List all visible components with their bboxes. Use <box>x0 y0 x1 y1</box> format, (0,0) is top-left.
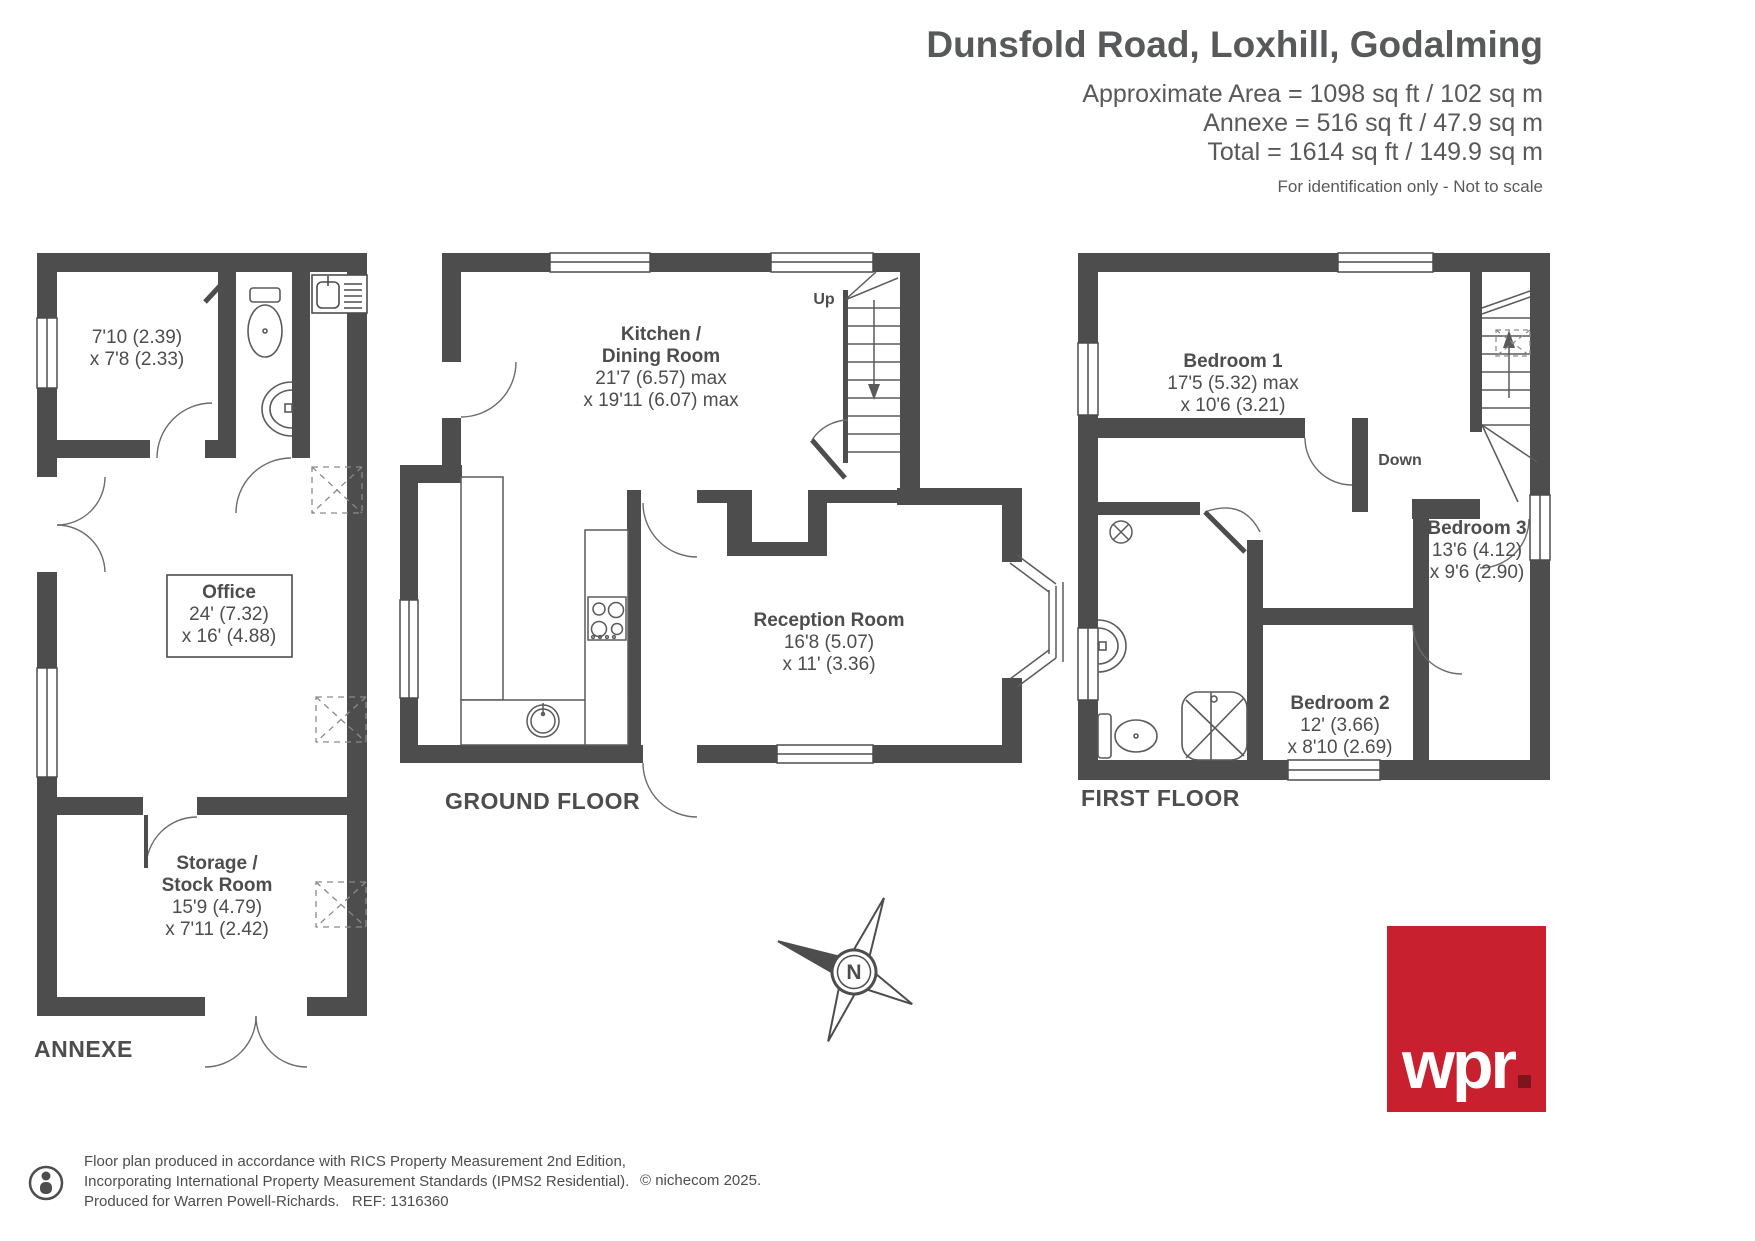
kitchen-label: Kitchen / Dining Room 21'7 (6.57) maxx 1… <box>583 324 738 412</box>
ground-floor-label: GROUND FLOOR <box>445 788 640 815</box>
toilet-icon <box>248 288 282 357</box>
footer-ref: REF: 1316360 <box>352 1193 449 1210</box>
storage-label: Storage / Stock Room 15'9 (4.79)x 7'11 (… <box>162 853 273 941</box>
stairs-down-arrowhead <box>1503 330 1515 348</box>
bedroom1-label: Bedroom 1 17'5 (5.32) maxx 10'6 (3.21) <box>1167 351 1298 417</box>
floorplan-page: N Dunsfold Road, Loxhill, Godalming Appr… <box>0 0 1755 1241</box>
annexe-room-dims: 7'10 (2.39)x 7'8 (2.33) <box>90 327 184 371</box>
bedroom3-label: Bedroom 3 13'6 (4.12)x 9'6 (2.90) <box>1427 518 1526 584</box>
person-icon <box>30 1167 62 1199</box>
header-block: Dunsfold Road, Loxhill, Godalming Approx… <box>926 24 1543 197</box>
annexe-floor-label: ANNEXE <box>34 1036 133 1063</box>
page-title: Dunsfold Road, Loxhill, Godalming <box>926 24 1543 66</box>
loft-hatch <box>1496 330 1530 356</box>
footer-line1: Floor plan produced in accordance with R… <box>84 1152 629 1172</box>
extractor-fan-icon <box>1110 521 1132 543</box>
up-label: Up <box>813 291 834 309</box>
approximate-area: Approximate Area = 1098 sq ft / 102 sq m <box>926 80 1543 109</box>
logo-text: wpr <box>1402 1027 1514 1103</box>
wpr-logo: wpr <box>1387 926 1546 1112</box>
annexe-windows <box>37 318 57 777</box>
footer-line3: Produced for Warren Powell-Richards. REF… <box>84 1192 629 1212</box>
first-floor-label: FIRST FLOOR <box>1081 785 1240 812</box>
bedroom2-label: Bedroom 2 12' (3.66)x 8'10 (2.69) <box>1287 693 1392 759</box>
footer-line2: Incorporating International Property Mea… <box>84 1172 629 1192</box>
basin-icon-ff <box>1098 620 1126 672</box>
stairs-up <box>845 272 900 452</box>
copyright: © nichecom 2025. <box>640 1172 761 1189</box>
total-area: Total = 1614 sq ft / 149.9 sq m <box>926 138 1543 167</box>
bay-window <box>1010 555 1063 687</box>
toilet-icon-ff <box>1098 714 1157 758</box>
logo-dot <box>1518 1075 1531 1088</box>
reception-label: Reception Room 16'8 (5.07)x 11' (3.36) <box>754 610 905 676</box>
identification-note: For identification only - Not to scale <box>926 177 1543 197</box>
compass-north-label: N <box>846 961 861 984</box>
kitchen-sink-icon <box>312 275 367 313</box>
annexe-plan <box>37 253 367 1067</box>
annexe-area: Annexe = 516 sq ft / 47.9 sq m <box>926 109 1543 138</box>
annexe-door-arcs <box>57 403 307 1067</box>
footer-block: Floor plan produced in accordance with R… <box>84 1152 629 1212</box>
basin-icon <box>262 382 292 436</box>
office-label: Office 24' (7.32)x 16' (4.88) <box>182 582 276 648</box>
compass-icon: N <box>750 867 945 1065</box>
stairs-down <box>1482 291 1537 502</box>
bathtub-icon <box>1182 692 1247 760</box>
down-label: Down <box>1378 452 1422 470</box>
